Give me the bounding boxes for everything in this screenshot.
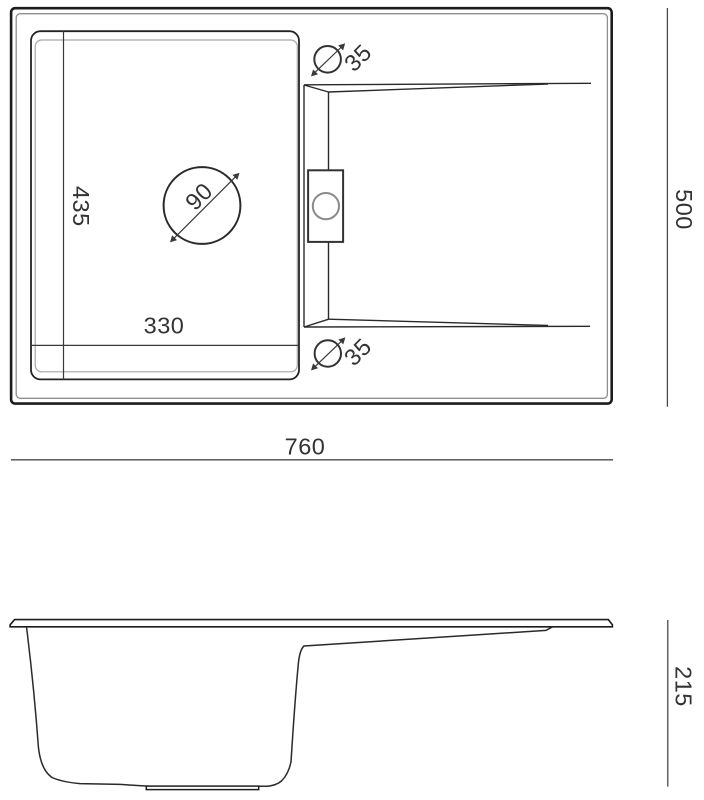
svg-text:500: 500 [671, 189, 697, 230]
svg-text:330: 330 [144, 313, 185, 339]
svg-text:435: 435 [68, 186, 94, 227]
svg-text:760: 760 [285, 434, 326, 460]
svg-text:215: 215 [671, 666, 697, 707]
